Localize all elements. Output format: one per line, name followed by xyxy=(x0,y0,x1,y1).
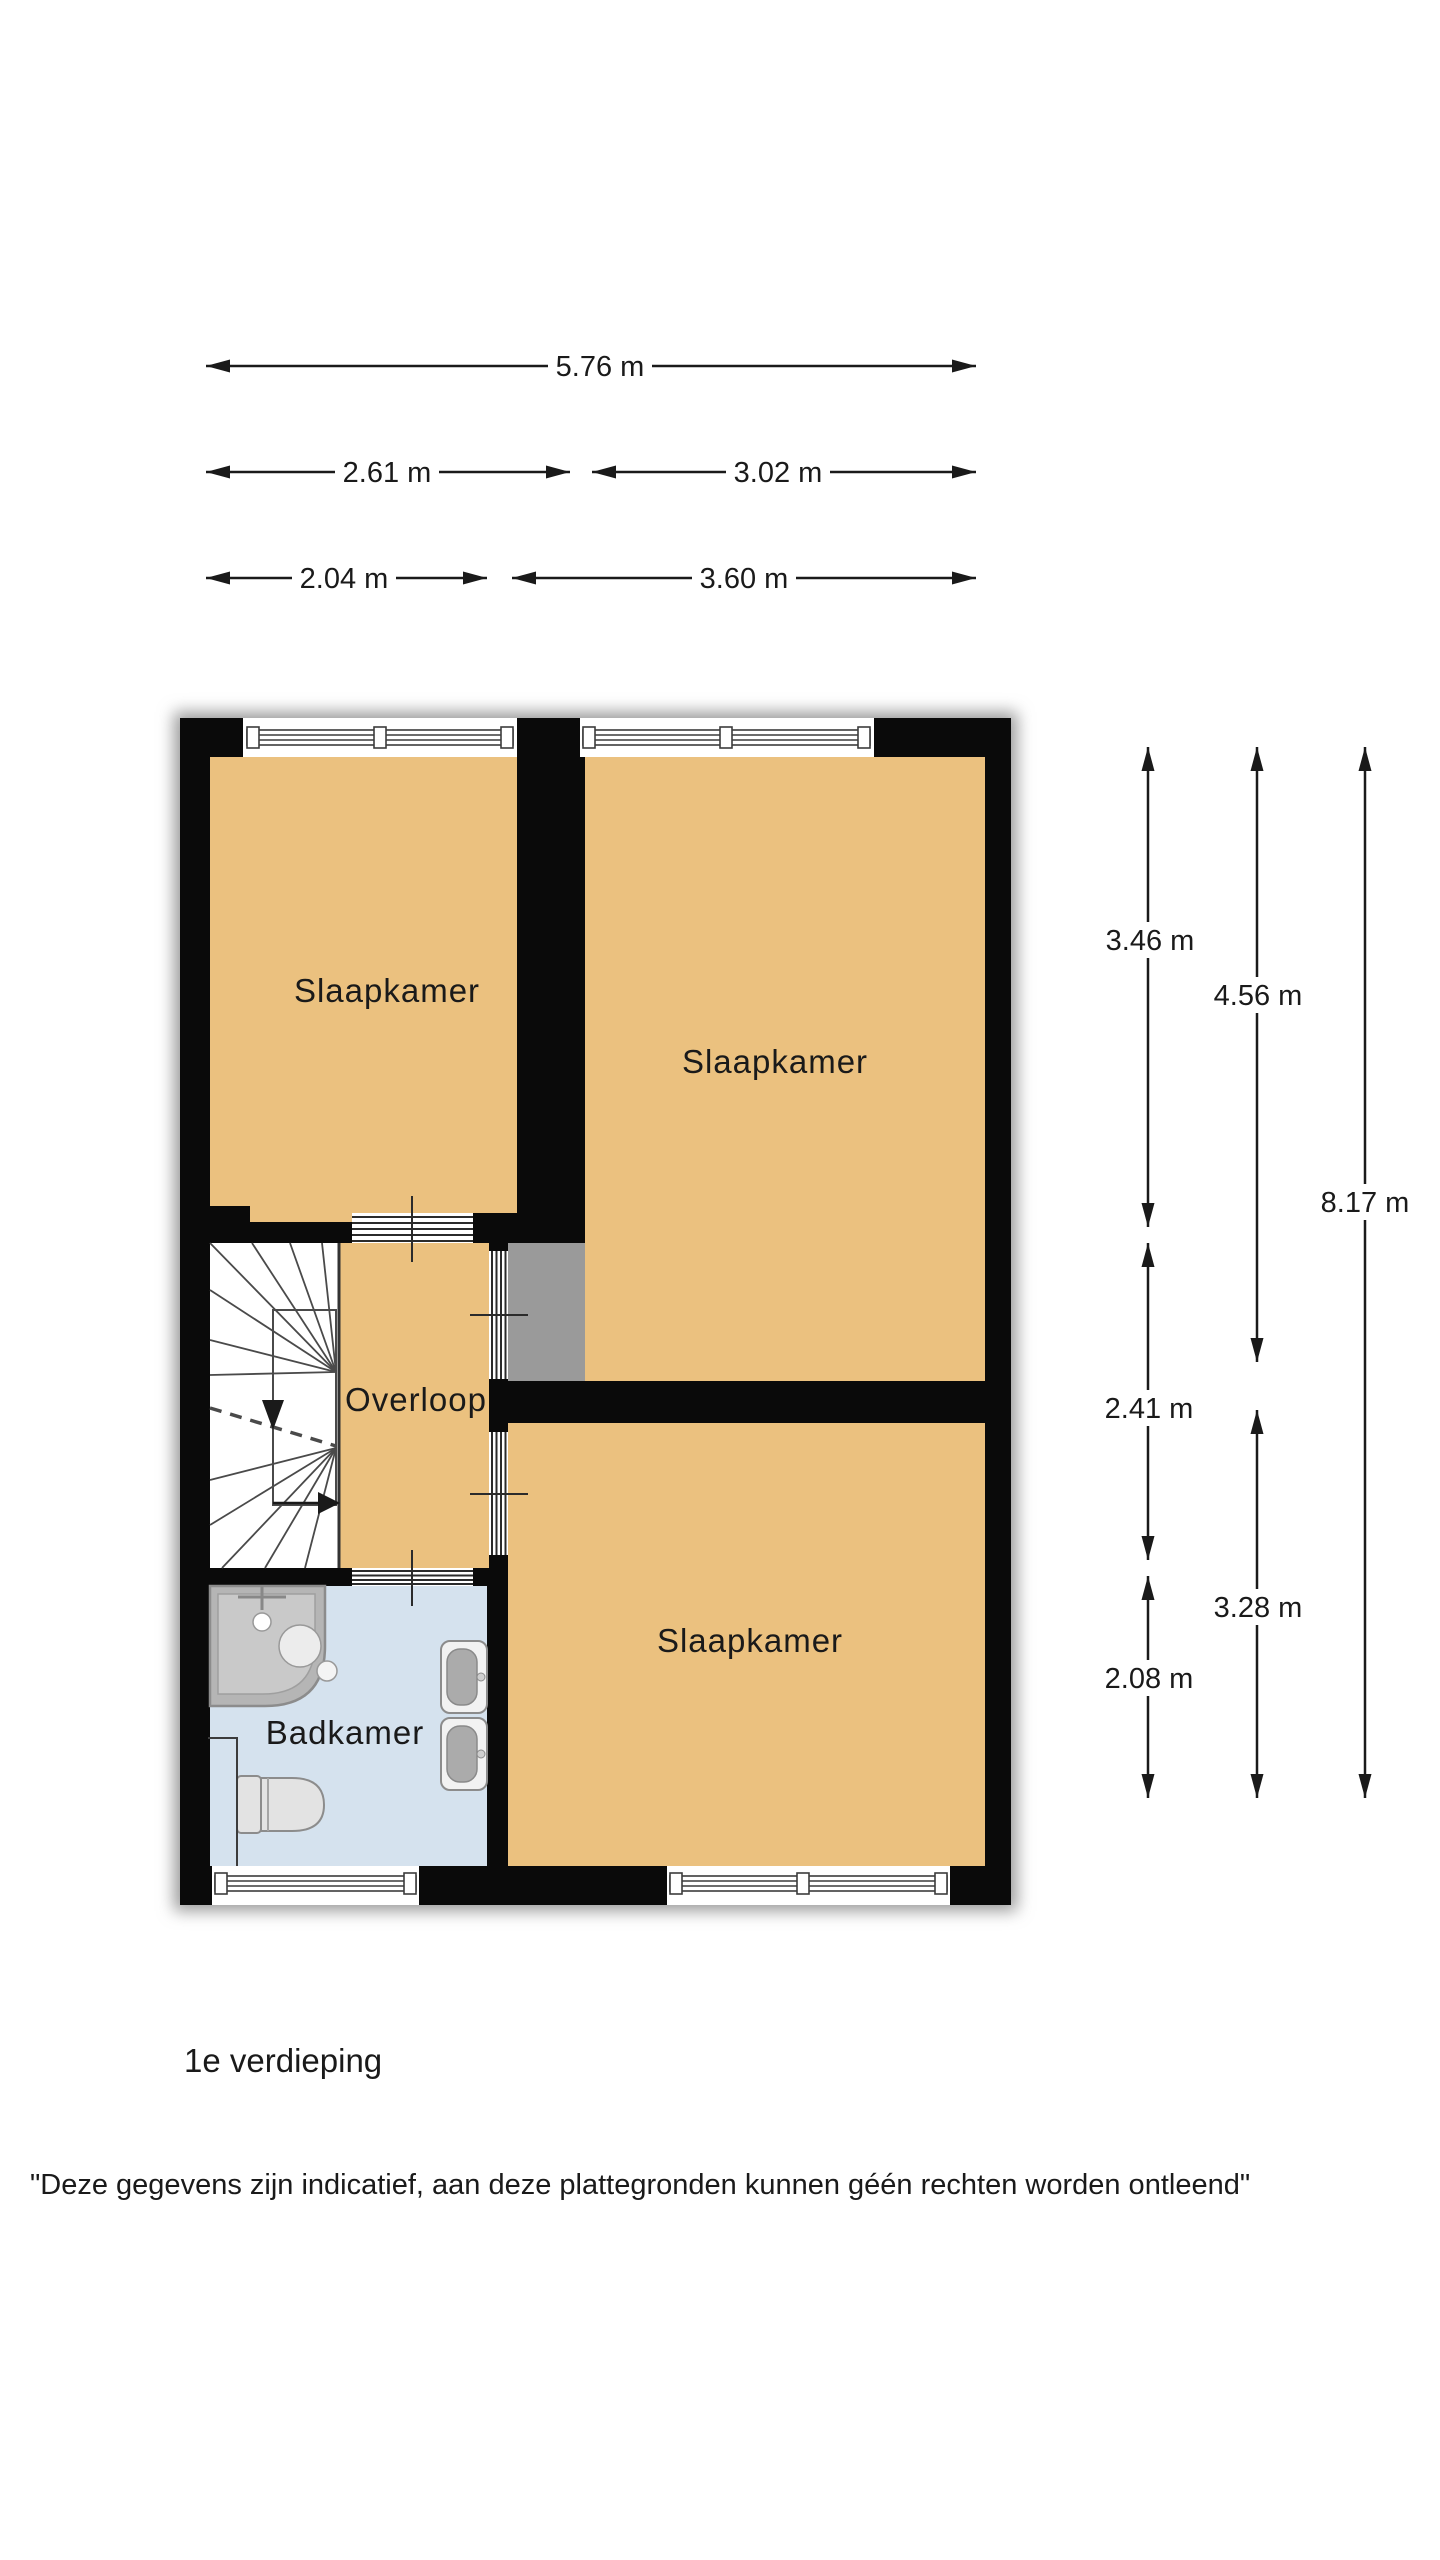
dim-label-456: 4.56 m xyxy=(1214,980,1303,1012)
dim-label-261: 2.61 m xyxy=(343,457,432,489)
sink-icon xyxy=(441,1641,487,1713)
wall-between-right-bedrooms xyxy=(508,1381,985,1423)
room-label-bathroom: Badkamer xyxy=(266,1714,424,1751)
dimension-right-columns: 3.46 m 2.41 m 2.08 m 4.56 m 3.28 m 8.17 … xyxy=(1094,747,1420,1798)
window-top-right xyxy=(580,718,874,757)
dimension-col1: 3.46 m 2.41 m 2.08 m xyxy=(1094,747,1205,1798)
dimension-col3: 8.17 m xyxy=(1310,747,1420,1798)
disclaimer-text: "Deze gegevens zijn indicatief, aan deze… xyxy=(30,2169,1250,2201)
dim-label-817: 8.17 m xyxy=(1321,1187,1410,1219)
wall-between-top-bedrooms xyxy=(517,757,585,1243)
dimension-row3: 2.04 m 3.60 m xyxy=(206,560,976,596)
dim-label-204: 2.04 m xyxy=(300,563,389,595)
dim-label-241: 2.41 m xyxy=(1105,1393,1194,1425)
dimension-total-width: 5.76 m xyxy=(206,348,976,384)
room-label-bedroom-bottom-right: Slaapkamer xyxy=(657,1622,843,1659)
floor-title: 1e verdieping xyxy=(184,2042,382,2079)
dimension-row2: 2.61 m 3.02 m xyxy=(206,454,976,490)
room-label-landing: Overloop xyxy=(345,1381,487,1418)
window-bottom-bathroom xyxy=(212,1866,419,1905)
dimension-top-rows: 5.76 m 2.61 m 3.02 m 2.04 m 3.60 m xyxy=(206,348,976,596)
window-bottom-bedroom xyxy=(667,1866,950,1905)
room-label-bedroom-top-right: Slaapkamer xyxy=(682,1043,868,1080)
toilet-icon xyxy=(237,1776,324,1833)
dim-label-360: 3.60 m xyxy=(700,563,789,595)
wall-stub-stairs xyxy=(210,1206,250,1243)
dim-label-208: 2.08 m xyxy=(1105,1663,1194,1695)
dim-label-328: 3.28 m xyxy=(1214,1592,1303,1624)
floorplan-canvas: 5.76 m 2.61 m 3.02 m 2.04 m 3.60 m 3.46 … xyxy=(0,0,1440,2560)
dim-label-302: 3.02 m xyxy=(734,457,823,489)
wall-bathroom-right xyxy=(487,1586,508,1866)
wall-under-bedroom-thick xyxy=(473,1213,517,1243)
sink-icon xyxy=(441,1718,487,1790)
dim-label-576: 5.76 m xyxy=(556,351,645,383)
window-top-left xyxy=(243,718,517,757)
room-label-bedroom-top-left: Slaapkamer xyxy=(294,972,480,1009)
floor-plan: Slaapkamer Slaapkamer Overloop Badkamer … xyxy=(174,712,1017,1911)
dimension-col2: 4.56 m 3.28 m xyxy=(1203,747,1313,1798)
dim-label-346: 3.46 m xyxy=(1106,925,1195,957)
